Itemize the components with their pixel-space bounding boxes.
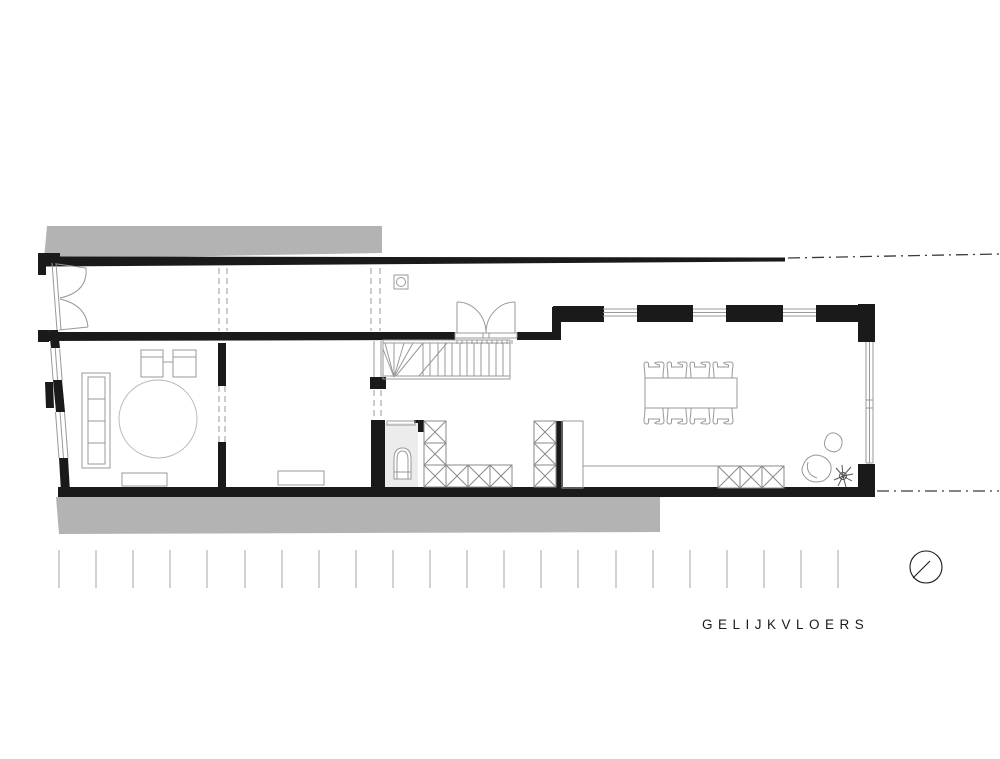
kitchen-counter — [562, 421, 718, 488]
chair-icon — [690, 362, 710, 378]
chair-icon — [667, 408, 687, 424]
round-rug — [119, 380, 197, 458]
armchair — [141, 350, 163, 377]
windows — [51, 263, 873, 463]
chair-icon — [713, 408, 733, 424]
kitchen-cabinets — [424, 421, 784, 488]
dining-set — [644, 362, 737, 424]
chair-icon — [644, 408, 664, 424]
toilet-room — [385, 421, 418, 487]
floor-plan-svg: GELIJKVLOERS — [0, 0, 1000, 759]
terrace-ticks — [59, 550, 838, 588]
column-symbol — [394, 275, 408, 289]
chair-icon — [667, 362, 687, 378]
neighbor-building-bottom — [56, 497, 660, 534]
lounge-corner — [802, 433, 853, 487]
chair-icon — [713, 362, 733, 378]
garden-boundary-wall — [45, 257, 785, 267]
floor-plan-page: GELIJKVLOERS — [0, 0, 1000, 759]
staircase — [383, 340, 510, 379]
hall-double-door — [455, 302, 517, 338]
chair-icon — [690, 408, 710, 424]
dining-table — [645, 378, 737, 408]
armchair — [173, 350, 196, 377]
neighbor-building-top — [44, 226, 382, 259]
beanbag — [824, 433, 842, 452]
plant-icon — [834, 465, 853, 487]
floor-title: GELIJKVLOERS — [702, 617, 869, 632]
overhead-beam-lines — [219, 268, 381, 442]
chair-icon — [644, 362, 664, 378]
walls — [38, 253, 875, 497]
front-door — [57, 264, 88, 330]
north-arrow-icon — [910, 551, 942, 583]
sideboard — [278, 471, 324, 485]
living-room-furniture — [82, 350, 324, 486]
sideboard — [122, 473, 167, 486]
